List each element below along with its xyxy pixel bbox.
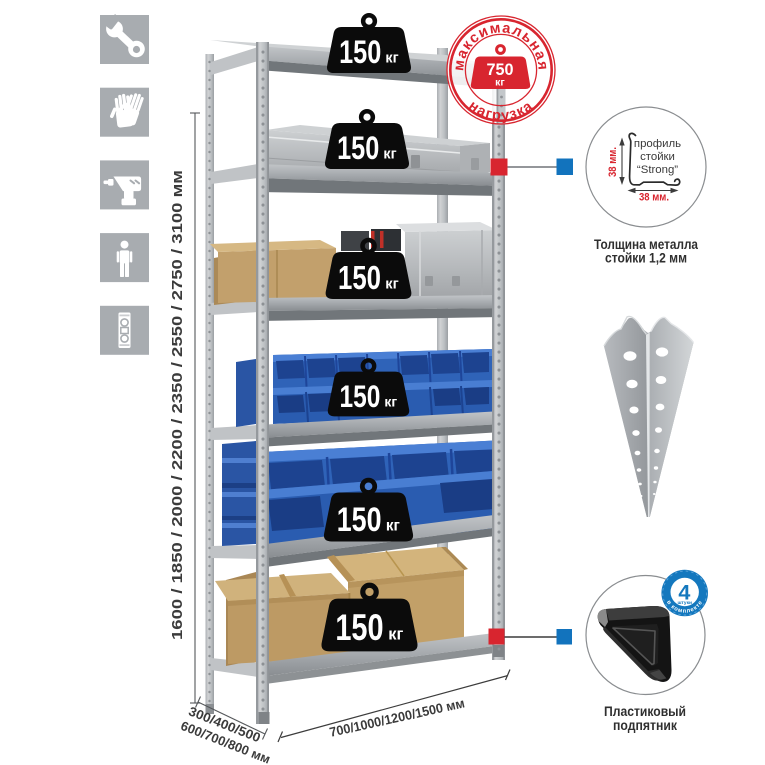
svg-text:стойки: стойки — [640, 151, 675, 163]
svg-text:“Strong”: “Strong” — [637, 164, 678, 176]
svg-text:38 мм.: 38 мм. — [607, 147, 619, 177]
svg-text:штуки: штуки — [677, 601, 692, 606]
svg-text:38 мм.: 38 мм. — [639, 192, 669, 204]
svg-text:подпятник: подпятник — [613, 718, 677, 733]
svg-text:стойки 1,2 мм: стойки 1,2 мм — [605, 251, 687, 266]
svg-text:1600 / 1850 / 2000 / 2200 / 23: 1600 / 1850 / 2000 / 2200 / 2350 / 2550 … — [170, 170, 186, 640]
svg-text:профиль: профиль — [634, 138, 681, 150]
svg-text:Пластиковый: Пластиковый — [604, 704, 686, 719]
svg-text:кг: кг — [495, 77, 505, 89]
